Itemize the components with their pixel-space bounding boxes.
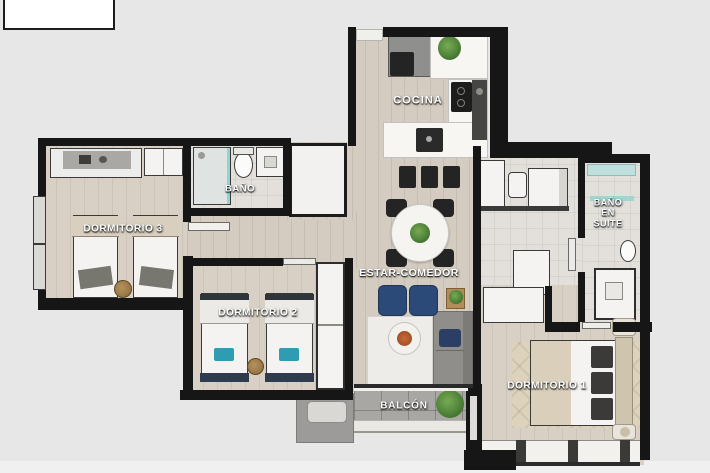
dining-centerpiece-plant <box>410 223 430 243</box>
bar-stool-2 <box>421 166 438 188</box>
sink-faucet <box>426 136 432 142</box>
sofa-back <box>463 312 472 389</box>
balcony-plant <box>436 390 464 418</box>
kitchen-plant <box>438 36 461 60</box>
kitchen-sink <box>416 128 443 152</box>
wall-dorm2-bottom <box>180 390 353 400</box>
wall-dorm3-bottom <box>38 298 193 310</box>
bar-stool-1 <box>399 166 416 188</box>
legend-box <box>3 0 115 30</box>
laundry-basin <box>508 172 527 198</box>
wall-living-right <box>473 146 481 392</box>
wall-right-exterior <box>640 154 650 460</box>
desk-item <box>99 156 107 163</box>
bed-dorm2-a-headrail <box>200 294 249 300</box>
closet-dorm1 <box>483 287 544 323</box>
suite-vanity <box>594 268 636 320</box>
ac-unit <box>296 393 354 443</box>
bed-dorm1-pillow-1 <box>591 346 613 368</box>
stool-dorm3 <box>114 280 132 298</box>
window-dorm3-mullion <box>34 243 45 245</box>
armchair-2 <box>409 285 438 316</box>
bed-dorm2-b-headrail <box>265 294 314 300</box>
hall-shelf-line <box>479 206 569 211</box>
bed-dorm2-a-pillow <box>214 348 234 361</box>
bath-vanity <box>256 147 284 177</box>
toilet <box>234 152 253 178</box>
room-label-bano-en-suite-line-2: EN <box>582 208 634 218</box>
suite-toilet <box>620 240 636 262</box>
door-leaf-dorm3 <box>188 222 230 231</box>
kitchen-microwave <box>390 52 414 76</box>
wardrobe-dorm3-divider <box>163 149 164 175</box>
room-label-cocina: COCINA <box>393 95 442 108</box>
hall-closet-a <box>479 160 505 207</box>
armchair-1 <box>378 285 407 316</box>
bed-dorm2-b-pillow <box>279 348 299 361</box>
room-label-bano-en-suite-line-3: SUITE <box>582 218 634 228</box>
wall-dorm1-corner-block <box>464 450 516 470</box>
desk-dorm3 <box>50 148 142 178</box>
bed-dorm1-headboard <box>615 337 633 429</box>
suite-sink <box>605 282 623 300</box>
wall-top-left <box>38 138 291 146</box>
wall-hall-dorm1-stub <box>545 286 552 326</box>
side-table-plant <box>449 290 463 304</box>
wall-bath-bottom <box>183 208 291 216</box>
balcony-slider-glass <box>354 388 468 391</box>
floorplan-canvas: COCINA BAÑO DORMITORIO 3 DORMITORIO 2 ES… <box>0 0 710 473</box>
wall-dorm2-top <box>193 258 283 266</box>
wall-bath-right <box>283 138 291 216</box>
kitchen-oven-column <box>472 80 487 140</box>
bed-dorm1-pillow-3 <box>591 398 613 420</box>
room-label-dormitorio-2: DORMITORIO 2 <box>218 307 297 319</box>
oven-knob <box>476 88 483 95</box>
nightstand-dorm1-bottom <box>612 424 636 440</box>
wall-kitchen-left <box>348 27 356 146</box>
window-mullion-2 <box>568 440 578 464</box>
room-label-estar-comedor: ESTAR-COMEDOR <box>359 267 459 279</box>
shower-head <box>198 152 205 159</box>
wardrobe-dorm2-divider <box>318 324 343 326</box>
bed-dorm1-pillow-2 <box>591 372 613 394</box>
balcony-railing <box>354 420 468 433</box>
food-plate <box>397 331 412 346</box>
kitchen-cooktop <box>451 82 472 112</box>
door-leaf-suite-dorm1 <box>582 322 611 329</box>
kitchen-counter-top <box>430 31 488 79</box>
wardrobe-dorm3 <box>144 148 183 176</box>
bar-stool-3 <box>443 166 460 188</box>
stool-dorm2 <box>247 358 264 375</box>
bath-sink <box>264 156 277 168</box>
wall-dorm2-left <box>183 256 193 398</box>
wall-kitchen-right <box>490 27 508 158</box>
room-label-bano: BAÑO <box>225 185 255 196</box>
desk-laptop <box>79 155 91 164</box>
closet-corridor <box>289 143 347 217</box>
room-label-balcon: BALCÓN <box>380 400 428 412</box>
window-dorm1-left <box>470 396 477 440</box>
wall-hall-suite-divider-lower <box>578 272 585 322</box>
wardrobe-dorm2 <box>316 262 345 390</box>
room-label-bano-en-suite-line-1: BAÑO <box>582 197 634 207</box>
cooktop-burner-2 <box>457 99 465 107</box>
sofa-pillow <box>439 329 461 347</box>
shower-glass <box>227 148 230 204</box>
sofa <box>433 311 473 390</box>
desk-top <box>63 151 131 169</box>
bed-dorm3-a-pad <box>78 266 113 289</box>
suite-shower-glass <box>587 164 636 176</box>
kitchen-upper-cabinet <box>356 29 383 41</box>
room-label-dormitorio-3: DORMITORIO 3 <box>83 223 162 235</box>
sofa-cushion-line <box>436 350 464 351</box>
ac-unit-vent <box>307 401 347 423</box>
window-dorm3 <box>33 196 46 290</box>
room-label-bano-en-suite: BAÑO EN SUITE <box>582 197 634 228</box>
hall-cabinet-b <box>528 168 568 207</box>
bed-dorm2-b-footband <box>265 373 314 382</box>
wall-dorm2-right <box>345 258 353 398</box>
bed-dorm2-a-footband <box>200 373 249 382</box>
window-mullion-3 <box>620 440 630 464</box>
door-leaf-dorm2 <box>283 258 316 265</box>
window-mullion-1 <box>516 440 526 464</box>
bed-dorm3-b-pad <box>139 266 174 289</box>
wall-suite-bottom-right <box>613 322 652 332</box>
hall-cabinet-b-shade <box>559 169 567 206</box>
nightstand-lamp-bottom <box>620 427 630 437</box>
cooktop-burner-1 <box>457 87 465 95</box>
toilet-tank <box>233 147 254 155</box>
room-label-dormitorio-1: DORMITORIO 1 <box>507 380 586 392</box>
door-leaf-suite-hall <box>568 238 576 271</box>
shower <box>193 147 231 205</box>
